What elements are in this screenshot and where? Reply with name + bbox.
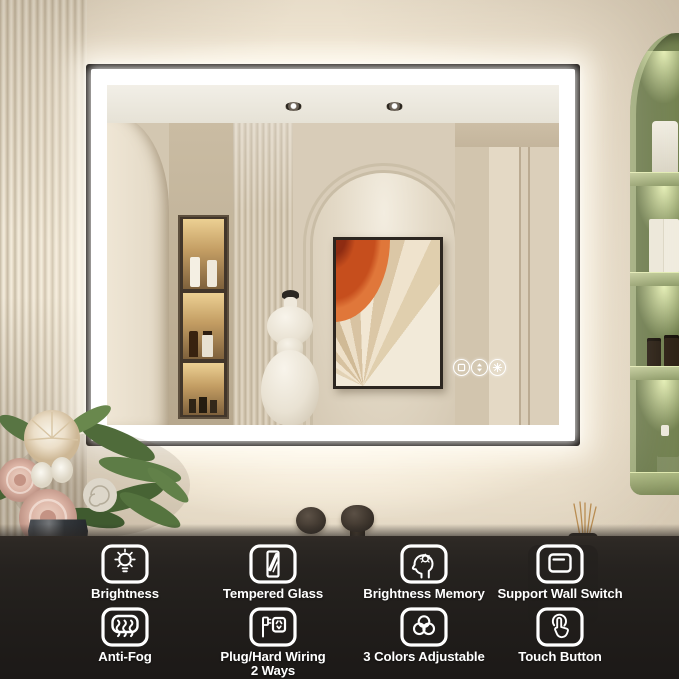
feature-label: Brightness Memory bbox=[363, 587, 484, 601]
amber-pump-bottle bbox=[657, 435, 679, 473]
cabinet-shelf bbox=[630, 367, 679, 380]
feature-label: Plug/Hard Wiring bbox=[220, 650, 325, 664]
door-frame-line bbox=[519, 147, 521, 425]
candle bbox=[190, 257, 200, 287]
feature-anti-fog: Anti-Fog bbox=[45, 607, 205, 664]
feature-tempered-glass: Tempered Glass bbox=[193, 544, 353, 601]
feature-label: Touch Button bbox=[518, 650, 602, 664]
cabinet-base bbox=[630, 473, 679, 495]
sculpture-lamp bbox=[258, 290, 322, 425]
wall-switch-icon bbox=[536, 544, 584, 584]
brightness-icon bbox=[101, 544, 149, 584]
shelf-light bbox=[636, 380, 679, 432]
white-boxes bbox=[649, 219, 679, 273]
product-photo: Brightness Tempered Glass bbox=[0, 0, 679, 679]
feature-brightness: Brightness bbox=[45, 544, 205, 601]
led-mirror-frame bbox=[86, 64, 580, 446]
cabinet-shelf bbox=[630, 173, 679, 186]
reflection-door-wall bbox=[455, 115, 559, 425]
feature-wall-switch: Support Wall Switch bbox=[480, 544, 640, 601]
defog-button-icon[interactable] bbox=[453, 359, 470, 376]
white-bottle bbox=[652, 121, 678, 173]
lamp-body bbox=[261, 350, 319, 425]
feature-label: Support Wall Switch bbox=[497, 587, 622, 601]
tempered-glass-icon bbox=[249, 544, 297, 584]
amber-jar bbox=[647, 338, 661, 367]
features-overlay: Brightness Tempered Glass bbox=[0, 524, 679, 679]
small-bottle bbox=[199, 397, 207, 413]
feature-plug-hard-wiring: Plug/Hard Wiring 2 Ways bbox=[193, 607, 353, 678]
brightness-memory-icon bbox=[400, 544, 448, 584]
green-arch-cabinet bbox=[630, 33, 679, 495]
feature-label: Anti-Fog bbox=[98, 650, 151, 664]
feature-label: Tempered Glass bbox=[223, 587, 323, 601]
feature-label-line2: 2 Ways bbox=[251, 664, 295, 678]
door-frame-line bbox=[528, 147, 530, 425]
shelf-light bbox=[636, 286, 679, 338]
touch-button-icon bbox=[536, 607, 584, 647]
feature-label: 3 Colors Adjustable bbox=[363, 650, 484, 664]
reflection-arch-pillar bbox=[107, 115, 169, 425]
dimmer-button-icon[interactable] bbox=[471, 359, 488, 376]
flower-bouquet bbox=[0, 390, 195, 538]
shelf-light bbox=[636, 51, 679, 103]
plug-hard-wiring-icon bbox=[249, 607, 297, 647]
soap-bottle bbox=[202, 335, 213, 357]
reflection-ceiling bbox=[107, 85, 559, 123]
candle bbox=[207, 260, 217, 287]
reflection-shelf-niche bbox=[180, 217, 227, 417]
small-bottle bbox=[210, 400, 217, 413]
reflection-wall-art bbox=[333, 237, 443, 389]
mirror-reflection bbox=[107, 85, 559, 425]
amber-bottle bbox=[189, 331, 198, 357]
recessed-light bbox=[386, 102, 403, 111]
color-temp-button-icon[interactable] bbox=[489, 359, 506, 376]
led-light-band bbox=[91, 69, 575, 441]
three-colors-icon bbox=[400, 607, 448, 647]
feature-label: Brightness bbox=[91, 587, 159, 601]
cabinet-shelf bbox=[630, 273, 679, 286]
anti-fog-icon bbox=[101, 607, 149, 647]
niche-cell bbox=[183, 293, 224, 359]
recessed-light bbox=[285, 102, 302, 111]
amber-jar bbox=[664, 335, 679, 367]
niche-cell bbox=[183, 219, 224, 289]
feature-touch-button: Touch Button bbox=[480, 607, 640, 664]
